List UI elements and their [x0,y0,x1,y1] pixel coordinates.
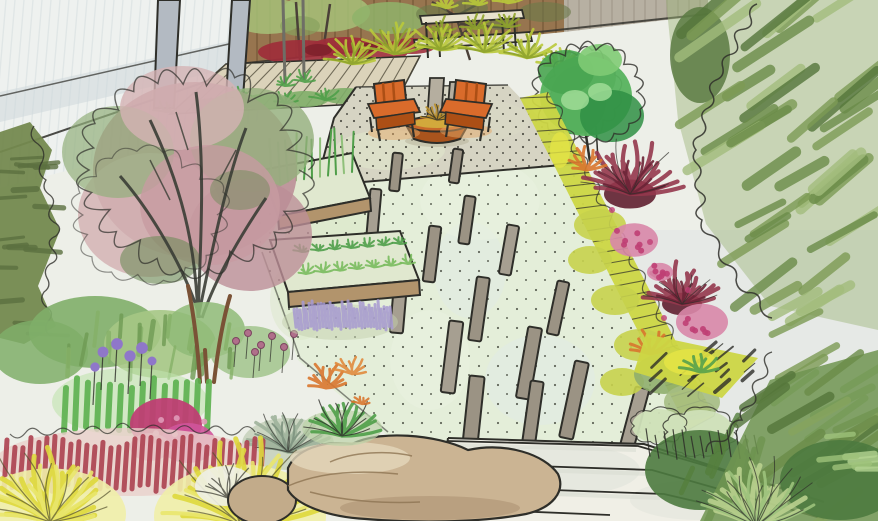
garden-illustration [0,0,878,521]
garden-sketch [0,0,878,521]
